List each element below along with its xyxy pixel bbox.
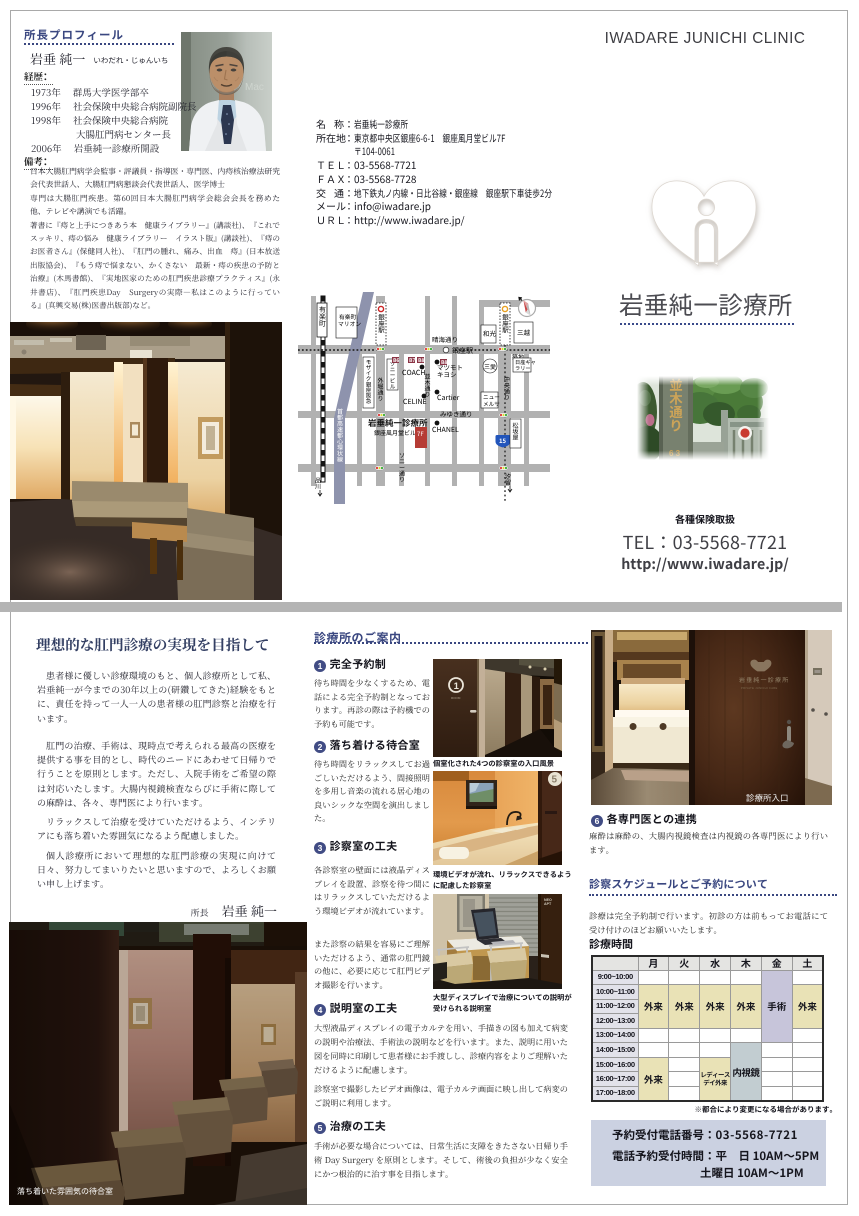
svg-text:銀座駅: 銀座駅 bbox=[377, 314, 387, 334]
svg-text:銀座風月堂ビル: 銀座風月堂ビル bbox=[374, 428, 416, 437]
svg-text:銀座駅: 銀座駅 bbox=[452, 346, 473, 356]
svg-text:品川: 品川 bbox=[314, 477, 323, 489]
svg-text:Cartier: Cartier bbox=[437, 393, 460, 403]
svg-text:ROOM: ROOM bbox=[451, 696, 461, 700]
svg-text:首都高速都心環状線: 首都高速都心環状線 bbox=[336, 407, 345, 462]
svg-text:ソニー通り: ソニー通り bbox=[398, 452, 407, 482]
svg-text:B6: B6 bbox=[393, 357, 399, 364]
svg-text:松坂屋: 松坂屋 bbox=[511, 421, 520, 440]
svg-text:7F: 7F bbox=[417, 429, 424, 438]
svg-text:マリオン: マリオン bbox=[338, 319, 361, 328]
svg-text:外堀通り: 外堀通り bbox=[376, 376, 385, 401]
svg-text:岩垂純一診療所: 岩垂純一診療所 bbox=[739, 675, 789, 684]
svg-text:モザイク銀座阪急: モザイク銀座阪急 bbox=[365, 359, 373, 404]
svg-text:B8: B8 bbox=[418, 357, 424, 364]
svg-text:B7: B7 bbox=[409, 357, 415, 364]
svg-text:並木通り: 並木通り bbox=[423, 372, 432, 397]
svg-text:和光: 和光 bbox=[483, 328, 497, 338]
svg-text:15: 15 bbox=[499, 436, 507, 445]
svg-text:並木通り: 並木通り bbox=[666, 378, 686, 432]
svg-text:みゆき通り: みゆき通り bbox=[440, 409, 473, 419]
svg-text:ラリー: ラリー bbox=[515, 365, 531, 372]
svg-text:Mac: Mac bbox=[245, 82, 264, 93]
svg-text:三愛: 三愛 bbox=[484, 362, 496, 371]
svg-text:COACH: COACH bbox=[402, 368, 425, 378]
svg-text:キヨシ: キヨシ bbox=[437, 369, 457, 379]
svg-text:6 3: 6 3 bbox=[669, 449, 681, 458]
svg-text:メルサ: メルサ bbox=[483, 400, 500, 408]
svg-text:三越: 三越 bbox=[517, 327, 531, 337]
svg-text:銀座駅: 銀座駅 bbox=[501, 314, 511, 334]
svg-text:5: 5 bbox=[552, 775, 558, 786]
svg-text:APT: APT bbox=[544, 902, 552, 906]
svg-text:CELINE: CELINE bbox=[403, 397, 427, 407]
svg-text:1: 1 bbox=[454, 681, 460, 692]
svg-text:晴海通り: 晴海通り bbox=[432, 334, 458, 344]
svg-text:CHANEL: CHANEL bbox=[432, 425, 459, 435]
svg-text:ソニービル: ソニービル bbox=[389, 361, 397, 389]
svg-text:PRIVATE JUNICHI CARE: PRIVATE JUNICHI CARE bbox=[741, 686, 778, 690]
svg-text:汐留: 汐留 bbox=[504, 472, 513, 485]
svg-text:有楽町: 有楽町 bbox=[318, 306, 328, 327]
svg-text:中央通り: 中央通り bbox=[503, 375, 512, 400]
